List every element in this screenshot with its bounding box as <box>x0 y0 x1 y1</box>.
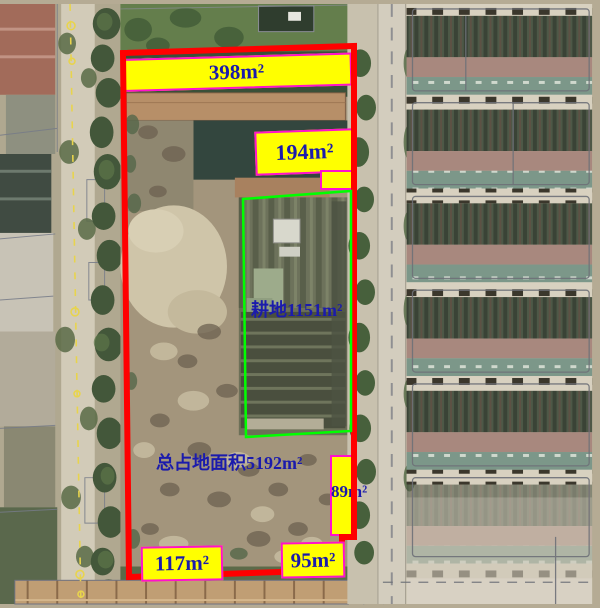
area-label-upper-notch <box>320 170 354 190</box>
area-label-bottom-left-text: 117m² <box>155 553 209 575</box>
area-label-top-text: 398m² <box>209 61 265 84</box>
area-label-bottom-right-text: 95m² <box>290 549 335 571</box>
area-label-upper: 194m² <box>254 128 354 175</box>
map-canvas: 398m² 194m² 89m² 117m² 95m² 耕地1151m² 总占地… <box>0 0 600 608</box>
area-label-bottom-right: 95m² <box>281 541 346 578</box>
total-area-text: 总占地面积5192m² <box>156 454 302 472</box>
area-label-top: 398m² <box>121 53 353 92</box>
area-label-bottom-left: 117m² <box>141 545 224 581</box>
area-label-upper-text: 194m² <box>275 140 334 164</box>
area-label-right-text: 89m² <box>331 483 367 500</box>
area-label-right: 89m² <box>330 455 355 536</box>
plot-area-text: 耕地1151m² <box>251 301 342 319</box>
